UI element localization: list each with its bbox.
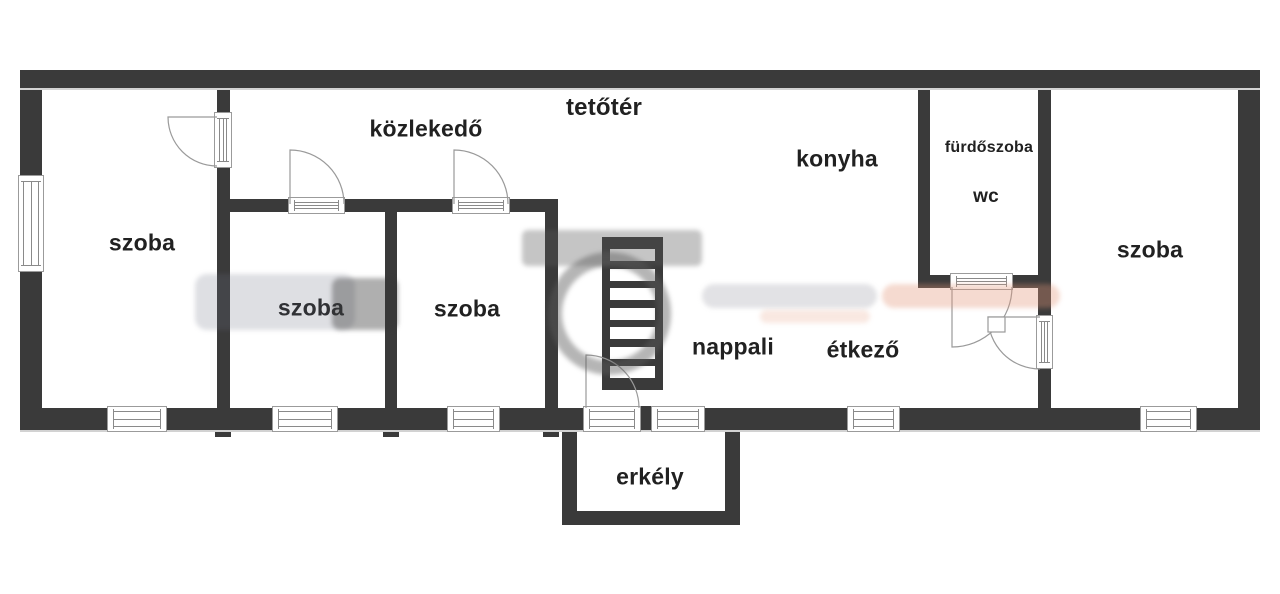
room-label-wc: wc [973, 186, 999, 208]
door-swing-layer [0, 0, 1280, 594]
floor-plan: tetőtér közlekedő konyha fürdőszoba wc s… [0, 0, 1280, 594]
door-swing-szoba-left [168, 117, 217, 166]
room-label-nappali: nappali [692, 334, 774, 361]
door-swing-szoba-mid-1 [290, 150, 344, 204]
room-label-szoba-right: szoba [1117, 237, 1183, 264]
door-swing-szoba-mid-2 [454, 150, 508, 204]
room-label-tetoter: tetőtér [566, 94, 642, 122]
room-label-erkely: erkély [616, 464, 684, 491]
room-label-szoba-left: szoba [109, 230, 175, 257]
room-label-furdoszoba: fürdőszoba [945, 139, 1033, 157]
door-swing-erkely [586, 355, 639, 408]
room-label-szoba-mid-1: szoba [278, 295, 344, 322]
room-label-etkezo: étkező [827, 337, 900, 364]
door-leaf-szoba-right [988, 317, 1005, 332]
room-label-szoba-mid-2: szoba [434, 296, 500, 323]
room-label-kozlekedo: közlekedő [369, 116, 482, 143]
room-label-konyha: konyha [796, 146, 878, 173]
